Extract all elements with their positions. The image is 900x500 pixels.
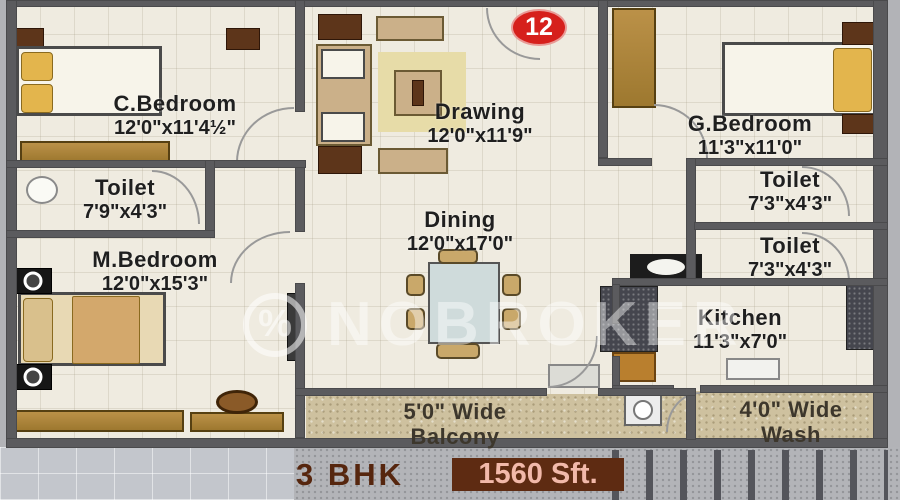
room-dims: 12'0"x15'3" xyxy=(30,273,280,295)
area-badge: 1560 Sft. xyxy=(452,458,624,491)
room-dims: 12'0"x11'4½" xyxy=(40,117,310,139)
room-name: M.Bedroom xyxy=(30,248,280,273)
dining-chair xyxy=(502,308,521,330)
room-dims: 7'3"x4'3" xyxy=(700,259,880,281)
room-name: Toilet xyxy=(700,234,880,259)
room-dims: 11'3"x11'0" xyxy=(630,137,870,159)
room-name: 4'0" Wide xyxy=(706,398,876,423)
round-basin xyxy=(216,390,258,414)
room-name: Drawing xyxy=(380,100,580,125)
wall xyxy=(612,284,620,324)
console-table xyxy=(378,148,448,174)
dining-chair xyxy=(406,274,425,296)
wall xyxy=(6,160,306,168)
dining-chair xyxy=(406,308,425,330)
room-label-g-bedroom: G.Bedroom 11'3"x11'0" xyxy=(630,112,870,159)
blanket xyxy=(72,296,140,364)
room-name: Kitchen xyxy=(640,306,840,331)
room-name: Wash xyxy=(706,423,876,448)
dining-table xyxy=(428,262,500,344)
cabinet xyxy=(190,412,284,432)
unit-number-badge: 12 xyxy=(511,9,567,46)
dining-chair xyxy=(502,274,521,296)
outside-paving xyxy=(0,447,294,500)
wall xyxy=(694,222,888,230)
room-label-toilet-right-top: Toilet 7'3"x4'3" xyxy=(700,168,880,215)
room-label-toilet-right-bottom: Toilet 7'3"x4'3" xyxy=(700,234,880,281)
dining-chair xyxy=(436,343,480,359)
wall xyxy=(295,388,547,396)
sofa-cushion xyxy=(321,49,365,79)
outside-stairs xyxy=(612,450,888,500)
room-label-dining: Dining 12'0"x17'0" xyxy=(360,208,560,255)
wall xyxy=(686,390,696,440)
wall xyxy=(598,158,652,166)
room-name: G.Bedroom xyxy=(630,112,870,137)
room-label-wash: 4'0" Wide Wash xyxy=(706,398,876,447)
room-label-balcony: 5'0" Wide Balcony xyxy=(330,400,580,449)
wardrobe xyxy=(612,8,656,108)
wall xyxy=(700,385,888,393)
room-name: C.Bedroom xyxy=(40,92,310,117)
kitchen-sink xyxy=(726,358,780,380)
room-name: Toilet xyxy=(700,168,880,193)
room-dims: 7'3"x4'3" xyxy=(700,193,880,215)
room-name: Dining xyxy=(360,208,560,233)
floor-plan: C.Bedroom 12'0"x11'4½" Drawing 12'0"x11'… xyxy=(0,0,900,500)
washing-machine xyxy=(624,394,662,426)
wardrobe xyxy=(12,410,184,432)
pillow xyxy=(21,52,53,81)
wall xyxy=(295,283,305,438)
bedside-lamp xyxy=(14,364,52,390)
room-dims: 11'3"x7'0" xyxy=(640,331,840,353)
dresser xyxy=(226,28,260,50)
room-label-toilet-left: Toilet 7'9"x4'3" xyxy=(35,176,215,223)
room-label-drawing: Drawing 12'0"x11'9" xyxy=(380,100,580,147)
room-dims: 12'0"x17'0" xyxy=(360,233,560,255)
room-dims: 12'0"x11'9" xyxy=(380,125,580,147)
room-dims: 7'9"x4'3" xyxy=(35,201,215,223)
wall xyxy=(6,0,888,7)
room-label-kitchen: Kitchen 11'3"x7'0" xyxy=(640,306,840,353)
wall xyxy=(6,230,215,238)
wall xyxy=(686,158,888,166)
sofa-cushion xyxy=(321,112,365,142)
end-table xyxy=(318,14,362,40)
end-table xyxy=(318,146,362,174)
room-name: Toilet xyxy=(35,176,215,201)
room-name: Balcony xyxy=(330,425,580,450)
wall xyxy=(598,0,608,158)
wall xyxy=(295,160,305,232)
wall xyxy=(598,388,696,396)
bhk-label: 3 BHK xyxy=(296,457,404,493)
bedside-table xyxy=(842,22,876,45)
room-name: 5'0" Wide xyxy=(330,400,580,425)
console-table xyxy=(376,16,444,41)
pillow xyxy=(833,48,872,112)
room-label-m-bedroom: M.Bedroom 12'0"x15'3" xyxy=(30,248,280,295)
wall xyxy=(6,0,17,447)
room-label-c-bedroom: C.Bedroom 12'0"x11'4½" xyxy=(40,92,310,139)
pillow xyxy=(23,298,53,362)
